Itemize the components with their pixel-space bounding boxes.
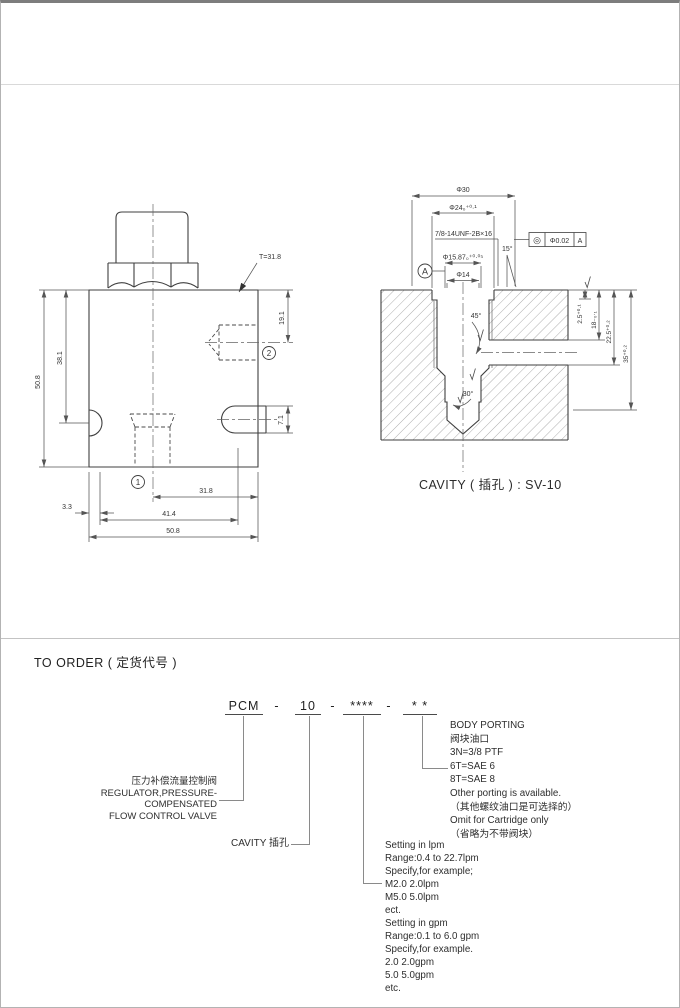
order-code-dash-1: - [273, 698, 281, 714]
dim-50-8-bottom: 50.8 [166, 528, 180, 535]
leader-porting [422, 716, 423, 768]
setting-line: 5.0 5.0gpm [385, 969, 479, 982]
fcf-datum: A [578, 238, 583, 245]
datasheet-page: T=31.8 50.8 38.1 19.1 7.1 3.3 31.8 41.4 … [0, 0, 680, 1008]
setting-line: 2.0 2.0gpm [385, 956, 479, 969]
dim-38-1: 38.1 [57, 351, 64, 365]
leader-size [309, 716, 310, 844]
valve-body-view: T=31.8 50.8 38.1 19.1 7.1 3.3 31.8 41.4 … [35, 204, 293, 542]
porting-line: 6T=SAE 6 [450, 760, 577, 774]
technical-drawings: T=31.8 50.8 38.1 19.1 7.1 3.3 31.8 41.4 … [1, 84, 680, 638]
setting-line: M2.0 2.0lpm [385, 878, 479, 891]
dimension-lines-left [39, 263, 293, 542]
leader-model [243, 716, 244, 800]
order-code-setting: **** [343, 698, 381, 715]
setting-line: ect. [385, 904, 479, 917]
centerlines [153, 204, 293, 502]
datum-a-balloon: A [418, 264, 432, 278]
order-section-title: TO ORDER ( 定货代号 ) [34, 652, 177, 671]
setting-line: M5.0 5.0lpm [385, 891, 479, 904]
cavity-section-view: Φ30 Φ24₀⁺⁰·¹ 7/8-14UNF-2B×16 Φ15.87₀⁺⁰·⁰… [381, 187, 637, 492]
cavity-code-label: CAVITY 插孔 [231, 834, 289, 849]
angle-30: 30° [463, 390, 474, 398]
dim-31-8: 31.8 [199, 488, 213, 495]
dim-phi24: Φ24₀⁺⁰·¹ [449, 204, 477, 212]
model-description-cn: 压力补偿流量控制阀 [29, 776, 217, 788]
port-1-balloon: 1 [132, 476, 145, 489]
hidden-port-lines [130, 325, 258, 465]
porting-line: Other porting is available. [450, 787, 577, 801]
dim-19-1: 19.1 [279, 311, 286, 325]
model-description: 压力补偿流量控制阀 REGULATOR,PRESSURE-COMPENSATED… [29, 776, 217, 822]
leader-setting [363, 716, 364, 883]
model-description-en-2: FLOW CONTROL VALVE [29, 811, 217, 823]
order-code-dash-2: - [329, 698, 337, 714]
cavity-caption: CAVITY ( 插孔 ) : SV-10 [419, 478, 562, 492]
leader-model-h [219, 800, 244, 801]
dim-18: 18₋₀·₁ [591, 310, 598, 329]
setting-line: Range:0.4 to 22.7lpm [385, 852, 479, 865]
setting-line: Specify,for example; [385, 865, 479, 878]
porting-line: BODY PORTING [450, 719, 577, 733]
t-callout: T=31.8 [259, 254, 281, 261]
thread-callout: 7/8-14UNF-2B×16 [435, 231, 492, 238]
porting-line: 3N=3/8 PTF [450, 746, 577, 760]
order-code-size: 10 [295, 698, 321, 715]
valve-body-outline [89, 290, 266, 467]
concentricity-icon: ◎ [533, 235, 541, 245]
leader-porting-h [422, 768, 448, 769]
port-2-balloon: 2 [263, 347, 276, 360]
porting-line: Omit for Cartridge only [450, 814, 577, 828]
porting-line: 阀块油口 [450, 733, 577, 747]
port-1-number: 1 [136, 478, 141, 487]
order-code-porting: * * [403, 698, 437, 715]
dim-phi15-87: Φ15.87₀⁺⁰·⁰⁵ [443, 254, 484, 262]
porting-line: 8T=SAE 8 [450, 773, 577, 787]
order-code-model: PCM [225, 698, 263, 715]
port-2-number: 2 [267, 349, 272, 358]
angle-15: 15° [502, 245, 513, 253]
porting-line: （其他螺纹油口是可选择的） [450, 801, 577, 815]
leader-setting-h [363, 883, 382, 884]
setting-line: Setting in gpm [385, 917, 479, 930]
dim-35: 35⁺⁰·² [622, 344, 630, 362]
dim-22-5: 22.5⁺⁰·² [605, 320, 613, 344]
setting-line: Specify,for example. [385, 943, 479, 956]
dim-2-5: 2.5⁺⁰·¹ [576, 303, 584, 323]
body-porting-options: BODY PORTING 阀块油口 3N=3/8 PTF 6T=SAE 6 8T… [450, 719, 577, 841]
setting-options: Setting in lpm Range:0.4 to 22.7lpm Spec… [385, 839, 479, 995]
dim-7-1: 7.1 [278, 415, 285, 425]
setting-line: etc. [385, 982, 479, 995]
dim-41-4: 41.4 [162, 511, 176, 518]
dim-50-8-left: 50.8 [35, 375, 42, 389]
porting-line: （省略为不带阀块） [450, 828, 577, 842]
dim-3-3: 3.3 [62, 504, 72, 511]
section-divider [1, 638, 679, 639]
setting-line: Range:0.1 to 6.0 gpm [385, 930, 479, 943]
datum-a-label: A [422, 267, 428, 277]
model-description-en-1: REGULATOR,PRESSURE-COMPENSATED [29, 788, 217, 811]
feature-control-frame: ◎ Φ0.02 A [529, 233, 586, 247]
order-code-dash-3: - [385, 698, 393, 714]
leader-size-h [291, 844, 310, 845]
fcf-tolerance: Φ0.02 [550, 238, 569, 245]
dim-phi30: Φ30 [456, 187, 469, 194]
dim-phi14: Φ14 [456, 272, 469, 279]
angle-45: 45° [471, 312, 482, 320]
